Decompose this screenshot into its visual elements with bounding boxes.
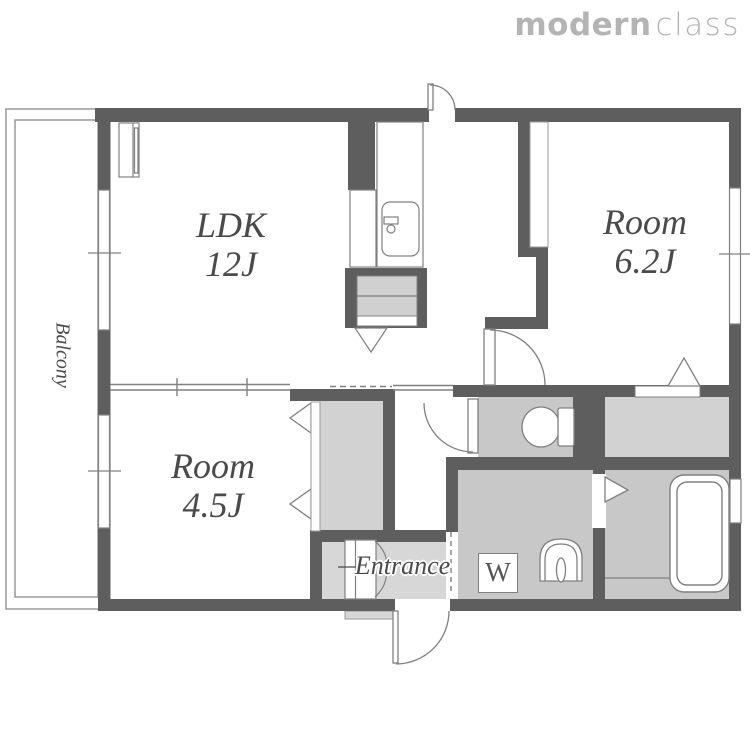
wall-top (95, 108, 741, 122)
room62-size: 6.2J (565, 242, 725, 281)
entrance-door-arc (396, 611, 449, 664)
ldk-size: 12J (151, 245, 311, 284)
wall-toilet-right (573, 385, 605, 469)
range-hood-triangle-icon (355, 328, 387, 352)
wall-kitchen-left (348, 122, 375, 190)
logo-bold-part: modern (514, 7, 651, 43)
ldk-name: LDK (151, 206, 311, 245)
washbasin-icon (540, 539, 582, 582)
wall-left (98, 108, 110, 611)
washing-machine-label: W (485, 557, 510, 587)
toilet-bowl (522, 407, 560, 447)
wall-jog-c (485, 317, 548, 329)
bathroom-door-gap (592, 474, 606, 528)
room45-closet-door-strip (311, 402, 320, 531)
kitchen-faucet-icon (384, 217, 398, 224)
wall-room45-closet-right (383, 401, 395, 532)
room62-closet-door-gap (635, 386, 700, 397)
wall-right (729, 108, 741, 611)
service-door-leaf (428, 84, 433, 110)
bathtub-outer (670, 475, 729, 592)
wall-jog-a (518, 247, 548, 257)
room45-closet-floor (320, 401, 383, 532)
wall-jog-b (536, 257, 548, 317)
kitchen-counter-block (355, 276, 417, 352)
room45-name: Room (133, 447, 293, 486)
bathtub-icon (670, 475, 729, 592)
room62-label: Room 6.2J (565, 203, 725, 281)
room62-closet-floor (605, 396, 733, 457)
room45-label: Room 4.5J (133, 447, 293, 525)
entrance-outer-step (345, 611, 393, 619)
toilet-tank (558, 408, 574, 446)
room62-name: Room (565, 203, 725, 242)
room62-door-leaf (484, 329, 495, 385)
service-door-arc (430, 85, 455, 110)
washbasin-handle (557, 558, 566, 582)
room62-storage-strip (530, 122, 548, 247)
ldk-label: LDK 12J (151, 206, 311, 284)
toilet-icon (522, 407, 574, 447)
bathroom-window (730, 479, 741, 523)
room62-closet-door-triangle (668, 358, 700, 386)
room45-closet-door-triangle-top (290, 403, 311, 433)
wall-entrance-top (310, 530, 446, 542)
counter-edge (357, 316, 417, 326)
refrigerator-inner (135, 128, 139, 173)
refrigerator-icon (119, 123, 139, 177)
brand-logo: modernclass (514, 7, 740, 43)
entrance-label: Entrance (330, 552, 475, 580)
floorplan-drawing (0, 0, 750, 750)
wall-entrance-left (310, 530, 322, 599)
kitchen-side-counter (350, 190, 376, 267)
toilet-door-leaf (468, 399, 478, 453)
room62-door-arc (490, 330, 545, 385)
ldk-window (99, 190, 110, 330)
entrance-door-leaf (393, 611, 398, 663)
logo-light-part: class (656, 7, 740, 43)
room62-window (730, 188, 741, 324)
toilet-door-arc (424, 403, 473, 452)
washing-machine-box: W (478, 553, 518, 593)
wall-room45-closet-top (290, 389, 395, 401)
wall-room62-left (518, 122, 530, 247)
room45-closet-door-triangle-bottom (290, 489, 311, 519)
wall-washroom-top (446, 457, 741, 470)
balcony-label: Balcony (43, 298, 73, 413)
kitchen-drain-icon (387, 225, 395, 233)
wall-hall-right (446, 457, 458, 532)
floorplan-canvas: LDK 12J Room 6.2J Room 4.5J Balcony Entr… (0, 0, 750, 750)
entrance-door-gap (395, 599, 450, 611)
room45-size: 4.5J (133, 486, 293, 525)
